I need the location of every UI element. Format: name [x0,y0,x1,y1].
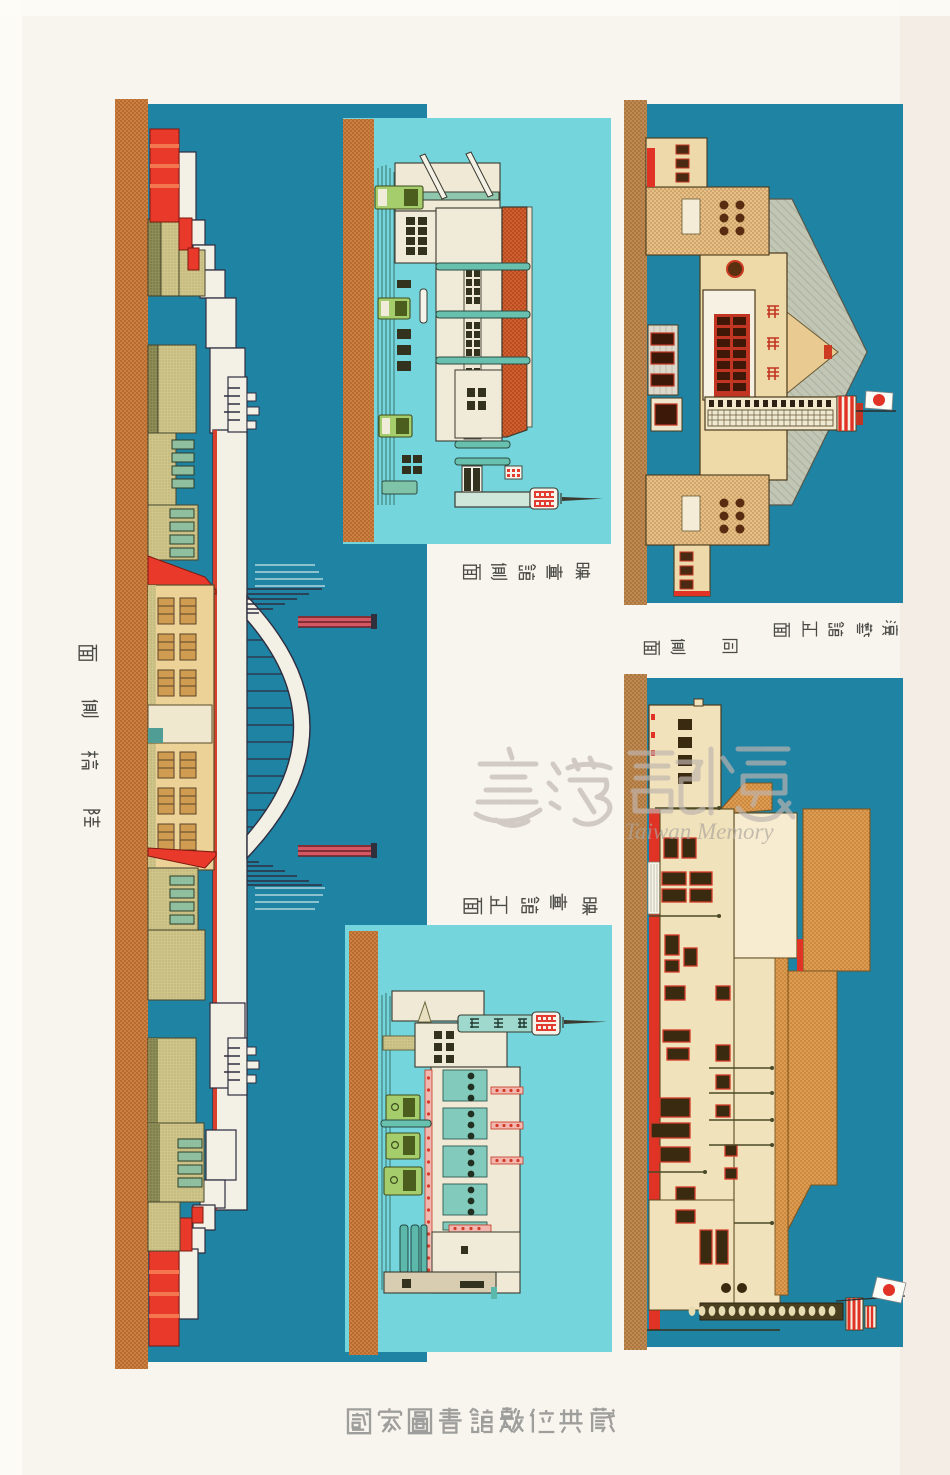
svg-text:Taiwan Memory: Taiwan Memory [624,819,774,844]
